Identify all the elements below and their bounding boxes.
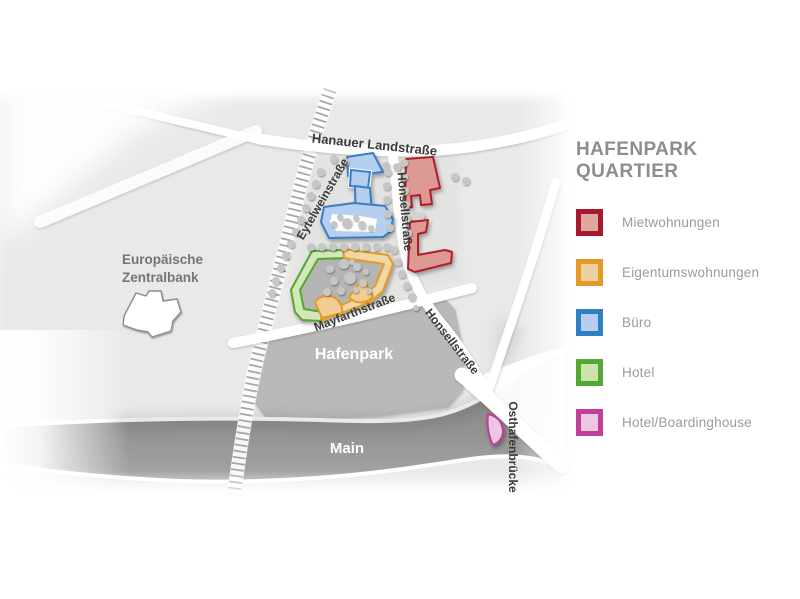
tree: [383, 196, 391, 204]
tree: [337, 287, 345, 295]
tree: [326, 265, 334, 273]
tree: [353, 263, 361, 271]
legend-swatch-mietwohnungen: [576, 209, 603, 236]
legend-item-hotel-boardinghouse: Hotel/Boardinghouse: [576, 409, 791, 436]
tree: [329, 243, 337, 251]
tree: [351, 243, 359, 251]
legend: HAFENPARK QUARTIER MietwohnungenEigentum…: [576, 139, 791, 459]
label-osthafenbruecke: Osthafenbrücke: [506, 401, 520, 493]
legend-label-hotel-boardinghouse: Hotel/Boardinghouse: [622, 415, 752, 430]
tree: [277, 264, 285, 272]
tree: [408, 293, 416, 301]
legend-swatch-eigentumswohnungen: [576, 259, 603, 286]
label-main-river: Main: [330, 440, 364, 457]
tree: [330, 277, 338, 285]
legend-item-hotel: Hotel: [576, 359, 791, 386]
tree: [462, 177, 470, 185]
legend-swatch-b-ro: [576, 309, 603, 336]
tree: [353, 215, 359, 221]
legend-swatch-hotel-boardinghouse: [576, 409, 603, 436]
tree: [366, 288, 372, 294]
tree: [349, 259, 355, 265]
label-hafenpark: Hafenpark: [315, 346, 393, 363]
tree: [394, 258, 402, 266]
tree: [383, 182, 391, 190]
tree: [359, 279, 367, 287]
tree: [339, 259, 349, 269]
legend-item-eigentumswohnungen: Eigentumswohnungen: [576, 259, 791, 286]
tree: [400, 159, 408, 167]
fade-top: [0, 76, 570, 98]
legend-label-hotel: Hotel: [622, 365, 655, 380]
tree: [358, 221, 366, 229]
legend-item-mietwohnungen: Mietwohnungen: [576, 209, 791, 236]
legend-label-eigentumswohnungen: Eigentumswohnungen: [622, 265, 759, 280]
tree: [312, 180, 320, 188]
tree: [393, 163, 401, 171]
tree: [282, 252, 290, 260]
label-ecb-line1: Europäische: [122, 252, 204, 267]
hafenpark-quartier-map-page: Hanauer Landstraße Eytelweinstraße Honse…: [0, 0, 800, 599]
legend-items: MietwohnungenEigentumswohnungenBüroHotel…: [576, 209, 791, 436]
tree: [451, 173, 459, 181]
tree: [386, 224, 394, 232]
tree: [353, 287, 359, 293]
tree: [373, 243, 381, 251]
legend-item-b-ro: Büro: [576, 309, 791, 336]
tree: [342, 218, 352, 228]
tree: [323, 288, 331, 296]
tree: [390, 246, 398, 254]
building-office-tower: [350, 170, 370, 188]
tree: [384, 210, 392, 218]
tree: [383, 243, 391, 251]
legend-label-mietwohnungen: Mietwohnungen: [622, 215, 720, 230]
tree: [318, 243, 326, 251]
tree: [331, 221, 337, 227]
tree: [268, 289, 276, 297]
tree: [413, 305, 419, 311]
tree: [403, 282, 411, 290]
tree: [340, 243, 348, 251]
tree: [344, 272, 356, 284]
label-ecb-line2: Zentralbank: [122, 270, 199, 285]
tree: [384, 168, 392, 176]
tree: [317, 168, 325, 176]
tree: [272, 277, 280, 285]
tree: [363, 269, 369, 275]
legend-swatch-hotel: [576, 359, 603, 386]
legend-title: HAFENPARK QUARTIER: [576, 139, 791, 183]
legend-label-b-ro: Büro: [622, 315, 651, 330]
fade-bottom: [0, 470, 575, 510]
tree: [362, 243, 370, 251]
tree: [307, 243, 315, 251]
tree: [287, 240, 295, 248]
tree: [337, 214, 343, 220]
tree: [368, 225, 374, 231]
tree: [398, 270, 406, 278]
